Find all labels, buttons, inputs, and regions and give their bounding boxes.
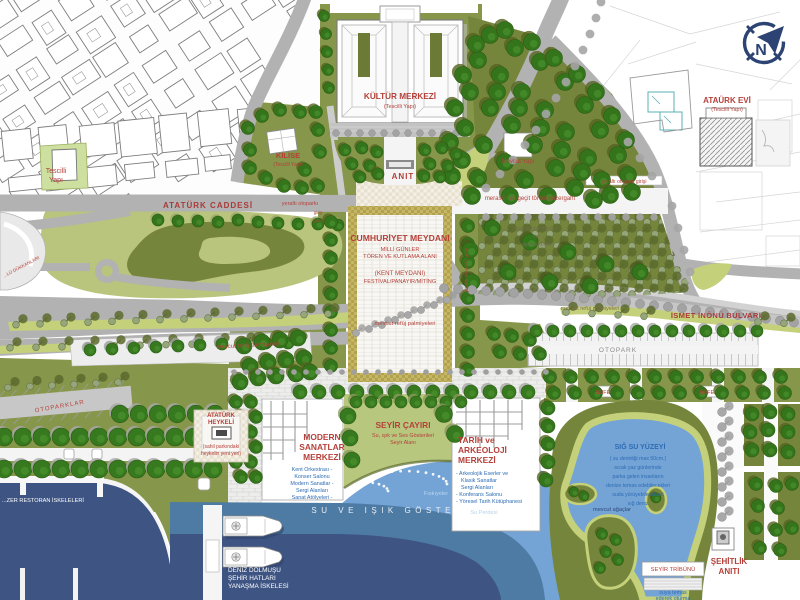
- svg-text:mevcut refüj palmiyeleri: mevcut refüj palmiyeleri: [561, 306, 620, 312]
- svg-text:ANIT: ANIT: [392, 172, 415, 181]
- svg-text:KİLİSE: KİLİSE: [276, 151, 300, 160]
- svg-text:MERKEZİ: MERKEZİ: [303, 452, 341, 462]
- svg-text:suda yürüyebilecekleri: suda yürüyebilecekleri: [612, 492, 663, 498]
- svg-text:ve: ve: [533, 234, 539, 240]
- svg-text:İSMET İNÖNÜ BULVARI: İSMET İNÖNÜ BULVARI: [671, 311, 761, 320]
- svg-text:MODERN: MODERN: [303, 432, 340, 442]
- svg-text:N: N: [755, 42, 767, 59]
- svg-text:ŞEHİTLİK: ŞEHİTLİK: [711, 557, 748, 566]
- svg-text:SANATLAR: SANATLAR: [299, 442, 344, 452]
- svg-text:mevcut refüj palmiyeleri: mevcut refüj palmiyeleri: [375, 321, 436, 327]
- svg-text:giriş: giriş: [314, 210, 323, 215]
- svg-text:Kent Orkestrası -: Kent Orkestrası -: [292, 467, 333, 473]
- svg-text:TARİH ve: TARİH ve: [458, 435, 495, 445]
- svg-text:(KENT MEYDANI): (KENT MEYDANI): [375, 270, 425, 277]
- svg-text:TÖREN VE KUTLAMA ALANI: TÖREN VE KUTLAMA ALANI: [363, 253, 437, 260]
- svg-text:SEYİR ÇAYIRI: SEYİR ÇAYIRI: [375, 420, 430, 430]
- svg-text:SEYİR TRİBÜNÜ: SEYİR TRİBÜNÜ: [651, 566, 696, 573]
- svg-text:Mevcut Yapı: Mevcut Yapı: [502, 159, 535, 165]
- svg-text:ederek oturma: ederek oturma: [656, 596, 691, 600]
- svg-text:ATAÜRK EVİ: ATAÜRK EVİ: [703, 96, 751, 105]
- svg-text:Sergi Alanları: Sergi Alanları: [296, 488, 328, 494]
- svg-text:HEYKELİ: HEYKELİ: [208, 419, 234, 426]
- svg-text:CUMHURİYET MEYDANI: CUMHURİYET MEYDANI: [350, 233, 449, 243]
- svg-text:çıkış: çıkış: [313, 218, 323, 223]
- svg-text:SIĞ SU YÜZEYİ: SIĞ SU YÜZEYİ: [615, 442, 666, 451]
- svg-text:Yapı: Yapı: [49, 177, 63, 184]
- svg-text:yeraltı otoparkı: yeraltı otoparkı: [282, 201, 318, 207]
- svg-text:ANITI: ANITI: [719, 567, 740, 576]
- svg-text:- Konferans Salonu: - Konferans Salonu: [456, 492, 502, 498]
- svg-text:Fıskıyeler: Fıskıyeler: [424, 491, 448, 497]
- svg-text:- Arkeolojik Eserler ve: - Arkeolojik Eserler ve: [456, 471, 508, 477]
- svg-text:Modern Sanatlar -: Modern Sanatlar -: [290, 481, 333, 487]
- svg-text:(Tescilli Yapı): (Tescilli Yapı): [384, 104, 416, 110]
- svg-text:ARKEOLOJİ: ARKEOLOJİ: [458, 445, 507, 455]
- svg-text:Konser Salonu: Konser Salonu: [294, 474, 329, 480]
- svg-text:ATATÜRK CADDESİ: ATATÜRK CADDESİ: [163, 201, 253, 210]
- svg-text:Sergi Alanları: Sergi Alanları: [461, 485, 493, 491]
- svg-text:(Tescilli Yapı): (Tescilli Yapı): [273, 162, 303, 168]
- svg-text:MİLLİ GÜNLER: MİLLİ GÜNLER: [381, 246, 420, 253]
- svg-text:yeraltı otopark girişi: yeraltı otopark girişi: [602, 179, 647, 185]
- svg-text:parka gelen insanların: parka gelen insanların: [612, 474, 663, 480]
- svg-text:Su Perdesi: Su Perdesi: [470, 510, 497, 516]
- svg-text:Su, ışık ve Ses Gösterileri: Su, ışık ve Ses Gösterileri: [372, 433, 434, 439]
- svg-text:OTOPARK: OTOPARK: [599, 347, 637, 354]
- svg-text:ATATÜRK: ATATÜRK: [207, 412, 235, 419]
- svg-text:ŞEHİR HATLARI: ŞEHİR HATLARI: [228, 573, 276, 582]
- svg-text:Klasik Sanatlar: Klasik Sanatlar: [461, 478, 497, 484]
- svg-text:sıcak yaz günlerinde: sıcak yaz günlerinde: [614, 465, 661, 471]
- svg-text:Sanat Atölyeleri -: Sanat Atölyeleri -: [292, 495, 333, 501]
- svg-text:(sahil parkındaki: (sahil parkındaki: [203, 444, 239, 450]
- svg-text:FESTİVAL/PANAYIR/MİTİNG: FESTİVAL/PANAYIR/MİTİNG: [364, 278, 436, 285]
- svg-text:- Yöresel Tarih Kütüphanesi: - Yöresel Tarih Kütüphanesi: [456, 499, 522, 505]
- svg-text:mevcut palmiyeleri: mevcut palmiyeleri: [514, 226, 559, 232]
- svg-text:...ZER RESTORAN İSKELELERİ: ...ZER RESTORAN İSKELELERİ: [2, 497, 84, 504]
- svg-text:Seyir Alanı: Seyir Alanı: [390, 440, 416, 446]
- svg-text:mevcut ağaçlar: mevcut ağaçlar: [593, 507, 631, 513]
- svg-text:DENİZ DOLMUŞU: DENİZ DOLMUŞU: [228, 565, 281, 574]
- svg-text:BÜFE: BÜFE: [596, 389, 611, 396]
- svg-text:Tescilli: Tescilli: [46, 168, 67, 175]
- svg-text:yeraltı otoparkı girişi: yeraltı otoparkı girişi: [464, 248, 470, 293]
- svg-text:heykelin yeni yeri): heykelin yeni yeri): [201, 451, 241, 457]
- svg-text:YANAŞMA İSKELESİ: YANAŞMA İSKELESİ: [228, 581, 289, 590]
- svg-text:BÜFE: BÜFE: [700, 389, 715, 396]
- svg-text:(Tescilli Yapı): (Tescilli Yapı): [711, 107, 743, 113]
- svg-text:ağaçlık doku: ağaçlık doku: [521, 242, 551, 248]
- svg-text:( su derinliği max 50cm.): ( su derinliği max 50cm.): [610, 456, 667, 462]
- svg-text:KÜLTÜR MERKEZİ: KÜLTÜR MERKEZİ: [364, 91, 436, 101]
- svg-text:merasim ve geçit töreni güzerg: merasim ve geçit töreni güzergahı: [485, 196, 576, 202]
- svg-text:MERKEZİ: MERKEZİ: [458, 455, 496, 465]
- svg-text:denize temas edebilecekleri: denize temas edebilecekleri: [606, 483, 670, 489]
